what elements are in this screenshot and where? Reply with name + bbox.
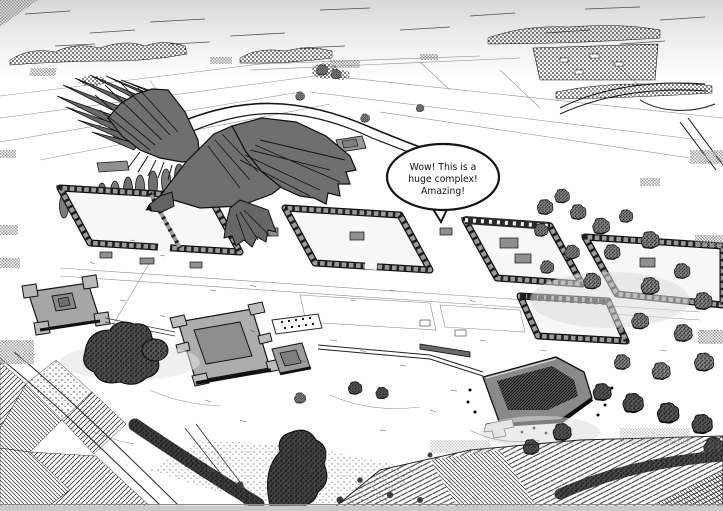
tree-icon — [614, 355, 630, 370]
tree-icon — [537, 200, 553, 215]
tree-icon — [593, 218, 610, 234]
corner-fort — [22, 275, 175, 336]
tree-icon — [348, 382, 362, 395]
speech-line-3: Amazing! — [421, 186, 465, 197]
ruin-enclosure-3 — [465, 220, 582, 284]
central-platform — [170, 302, 283, 386]
speech-bubble: Wow! This is a huge complex! Amazing! — [387, 144, 499, 222]
speech-line-1: Wow! This is a — [410, 162, 477, 173]
tree-icon — [555, 189, 570, 203]
tree-icon — [570, 205, 586, 220]
illustration-panel: Wow! This is a huge complex! Amazing! — [0, 0, 723, 511]
tree-icon — [641, 232, 659, 249]
tree-icon — [593, 384, 611, 401]
tree-icon — [361, 114, 370, 122]
tree-icon — [565, 245, 580, 259]
ruin-enclosure-2 — [285, 208, 430, 270]
tree-icon — [294, 393, 305, 404]
speech-line-2: huge complex! — [408, 174, 478, 185]
comic-panel: Wow! This is a huge complex! Amazing! — [0, 0, 723, 511]
tree-icon — [657, 403, 678, 423]
tree-icon — [416, 104, 424, 111]
distant-village — [533, 44, 658, 80]
tree-icon — [674, 325, 692, 342]
tree-icon — [376, 387, 388, 399]
tree-icon — [623, 393, 643, 412]
tree-icon — [652, 363, 670, 380]
faint-court-outlines — [300, 295, 525, 336]
tree-icon — [692, 414, 712, 433]
farm-fields-right — [330, 436, 723, 511]
column-plaza — [272, 314, 322, 334]
tree-icon — [296, 92, 305, 100]
tree-icon — [695, 353, 714, 371]
tree-icon — [619, 210, 633, 223]
